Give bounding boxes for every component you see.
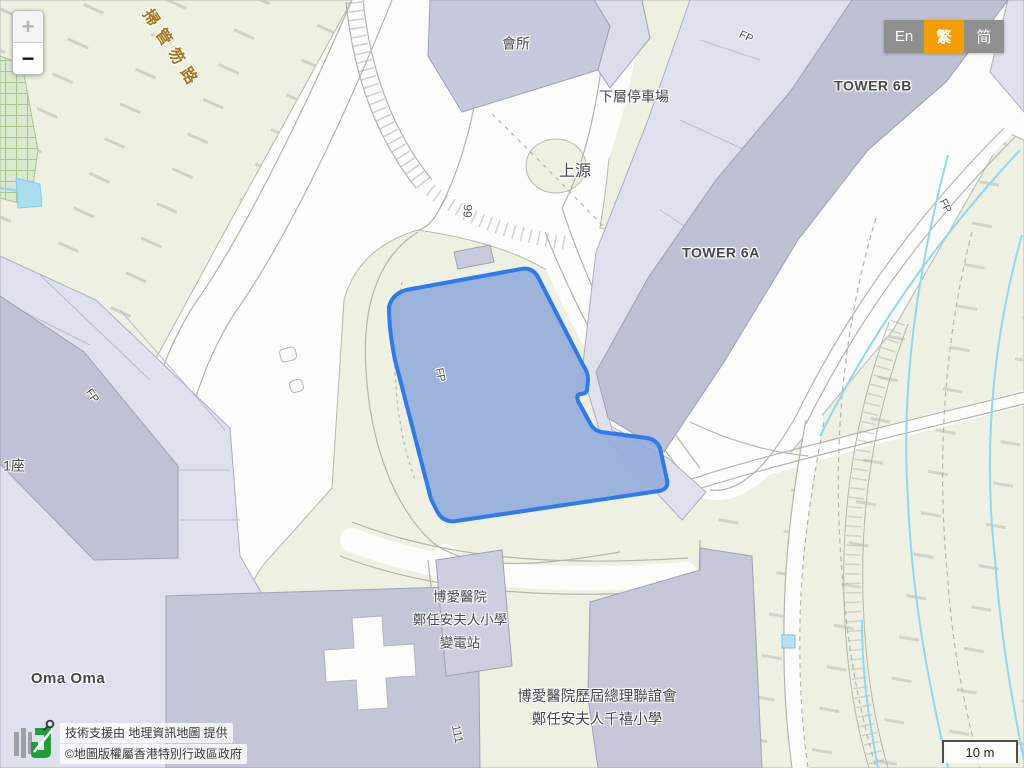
- scale-bar: 10 m: [942, 740, 1018, 763]
- attribution-texts: 技術支援由 地理資訊地圖 提供 ©地圖版權屬香港特別行政區政府: [60, 723, 247, 764]
- language-button-simplified-chinese[interactable]: 简: [964, 20, 1004, 53]
- zoom-out-button[interactable]: −: [13, 43, 43, 74]
- logo-glyph: [14, 721, 53, 758]
- map-canvas[interactable]: [0, 0, 1024, 768]
- geoinfo-map-logo[interactable]: [12, 718, 58, 764]
- road-island: [526, 139, 586, 193]
- attribution-support: 技術支援由 地理資訊地圖 提供: [60, 723, 233, 743]
- water-tank: [782, 635, 795, 648]
- language-button-traditional-chinese[interactable]: 繁: [924, 20, 964, 53]
- language-switcher: En 繁 简: [884, 20, 1004, 53]
- attribution-copyright: ©地圖版權屬香港特別行政區政府: [60, 744, 247, 764]
- building-substation: [436, 550, 512, 676]
- zoom-in-button[interactable]: +: [13, 11, 43, 43]
- map-application: 掃管笏路 會所 下層停車場 上源 TOWER 6B TOWER 6A 1座 Om…: [0, 0, 1024, 768]
- attribution: 技術支援由 地理資訊地圖 提供 ©地圖版權屬香港特別行政區政府: [12, 718, 247, 764]
- scale-bar-label: 10 m: [966, 745, 995, 760]
- zoom-control: + −: [12, 10, 44, 75]
- language-button-en[interactable]: En: [884, 20, 924, 53]
